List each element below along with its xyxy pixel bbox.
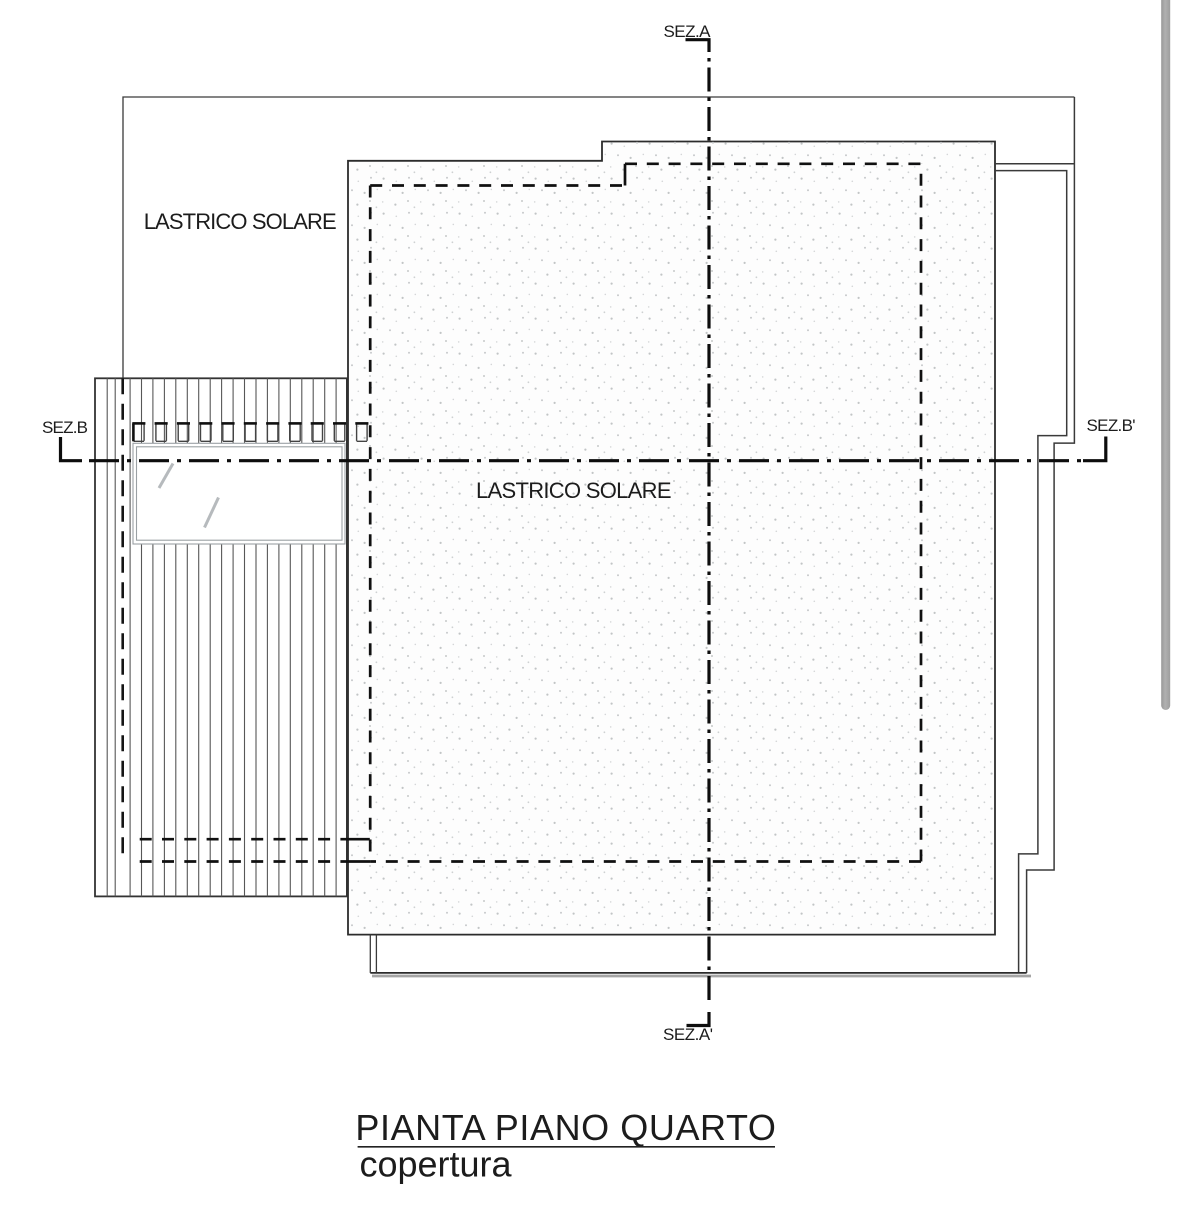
svg-text:copertura: copertura (360, 1144, 513, 1185)
svg-text:SEZ.B': SEZ.B' (1087, 416, 1136, 435)
svg-text:LASTRICO SOLARE: LASTRICO SOLARE (144, 209, 337, 234)
svg-text:SEZ.B: SEZ.B (42, 418, 88, 437)
svg-text:SEZ.A: SEZ.A (664, 22, 712, 41)
svg-text:SEZ.A': SEZ.A' (663, 1025, 713, 1044)
svg-text:LASTRICO SOLARE: LASTRICO SOLARE (476, 478, 672, 503)
svg-text:PIANTA PIANO QUARTO: PIANTA PIANO QUARTO (355, 1107, 776, 1148)
